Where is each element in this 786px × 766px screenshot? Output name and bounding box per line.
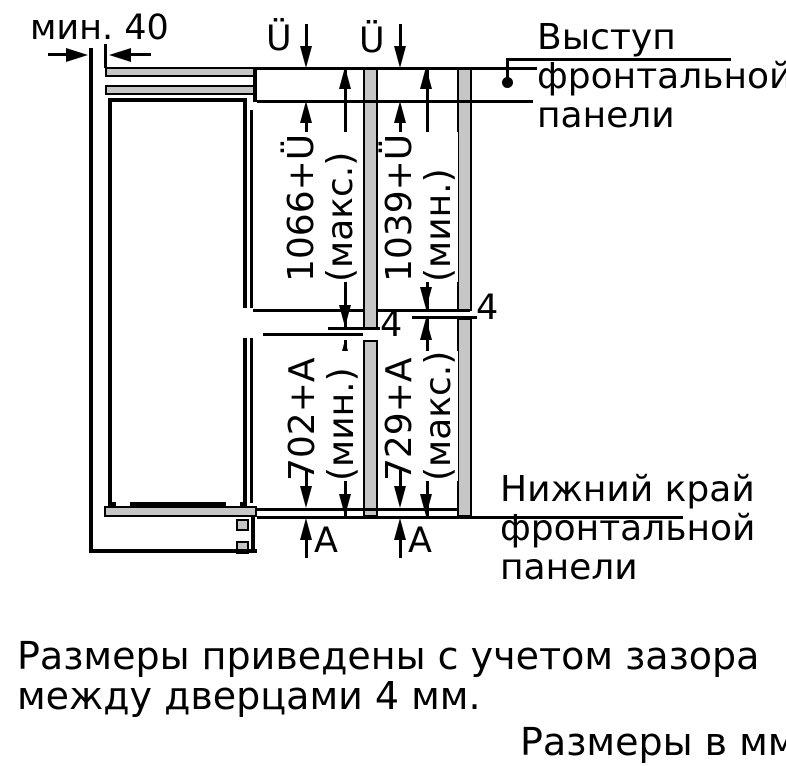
up-arrowhead xyxy=(300,518,312,540)
appliance-door-lower xyxy=(250,338,253,503)
note-line: Размеры приведены с учетом зазора xyxy=(17,636,759,676)
up-arrowhead xyxy=(394,518,406,540)
a-overlap-label-left: A xyxy=(314,524,338,559)
cabinet-right-edge xyxy=(251,517,255,550)
cabinet-bottom-line xyxy=(89,549,257,553)
up-arrowhead xyxy=(394,101,406,123)
callout-line: панели xyxy=(537,96,786,135)
down-arrowhead xyxy=(420,287,432,309)
down-arrowhead xyxy=(339,494,351,516)
appliance-front-upper xyxy=(243,98,247,308)
appliance-door-upper xyxy=(250,110,253,308)
gap-cap-center xyxy=(328,327,380,330)
door-gap-note: Размеры приведены с учетом зазора между … xyxy=(17,636,759,716)
cabinet-top-panel-front-strip xyxy=(105,67,257,77)
callout-line: Выступ xyxy=(537,18,786,57)
min-gap-shaft-right xyxy=(129,53,151,56)
wall-line xyxy=(89,48,93,552)
callout-line: панели xyxy=(500,548,755,587)
units-note: Размеры в мм xyxy=(520,722,786,762)
dim-qualifier: (мин.) xyxy=(419,132,458,282)
note-line: между дверцами 4 мм. xyxy=(17,676,759,716)
dim-label-lower-min: 702+A (мин.) xyxy=(283,351,361,481)
front-panel-min-upper xyxy=(457,67,472,311)
top-callout-dot xyxy=(502,77,513,88)
foot-block-upper xyxy=(236,519,249,531)
up-arrowhead xyxy=(300,101,312,123)
up-arrowhead xyxy=(339,67,351,89)
dim-label-lower-max: 729+A (макс.) xyxy=(380,351,458,481)
callout-front-panel-lower-edge: Нижний край фронтальной панели xyxy=(500,470,755,587)
dim-value: 1039+Ü xyxy=(380,132,419,282)
callout-line: Нижний край xyxy=(500,470,755,509)
down-arrowhead xyxy=(300,46,312,68)
dim-qualifier: (макс.) xyxy=(419,351,458,481)
down-arrowhead xyxy=(339,305,351,327)
a-overlap-label-right: A xyxy=(408,524,432,559)
dim-qualifier: (мин.) xyxy=(322,351,361,481)
dim-value: 702+A xyxy=(283,351,322,481)
down-arrowhead xyxy=(300,486,312,508)
callout-line: фронтальной xyxy=(537,57,786,96)
a-up-shaft-right xyxy=(399,538,402,558)
gap-label-right: 4 xyxy=(476,291,498,326)
min-gap-shaft-left xyxy=(48,53,68,56)
u-overlap-label-left: Ü xyxy=(266,22,292,57)
front-panel-max-upper xyxy=(363,67,378,330)
door-split-bottom-line xyxy=(263,333,363,336)
installation-diagram: мин. 40 Ü Ü 1066+Ü (макс.) 1039+Ü (мин.)… xyxy=(0,0,786,766)
a-up-shaft-left xyxy=(305,538,308,558)
right-arrowhead xyxy=(66,48,88,62)
gap-label-center: 4 xyxy=(380,308,402,343)
plinth-panel xyxy=(104,506,257,517)
callout-front-panel-protrusion: Выступ фронтальной панели xyxy=(537,18,786,135)
front-panel-max-lower xyxy=(363,340,378,517)
dim-qualifier: (макс.) xyxy=(321,132,360,282)
appliance-front-lower xyxy=(243,338,247,506)
u-down-shaft-left xyxy=(305,24,308,48)
down-arrowhead xyxy=(420,494,432,516)
up-arrowhead xyxy=(420,318,432,340)
appliance-outline xyxy=(108,98,243,506)
left-arrowhead xyxy=(109,48,131,62)
min-gap-label: мин. 40 xyxy=(30,11,169,46)
cabinet-top-panel-rear-strip xyxy=(105,85,257,95)
front-panel-min-lower xyxy=(457,318,472,517)
down-arrowhead xyxy=(394,46,406,68)
callout-line: фронтальной xyxy=(500,509,755,548)
dim-value: 1066+Ü xyxy=(282,132,321,282)
dim-label-upper-min: 1039+Ü (мин.) xyxy=(380,132,458,282)
dim-value: 729+A xyxy=(380,351,419,481)
cabinet-top-panel-edge xyxy=(253,67,257,102)
u-overlap-label-right: Ü xyxy=(359,24,385,59)
down-arrowhead xyxy=(394,486,406,508)
u-down-shaft-right xyxy=(399,24,402,48)
dim-label-upper-max: 1066+Ü (макс.) xyxy=(282,132,360,282)
up-arrowhead xyxy=(420,67,432,89)
